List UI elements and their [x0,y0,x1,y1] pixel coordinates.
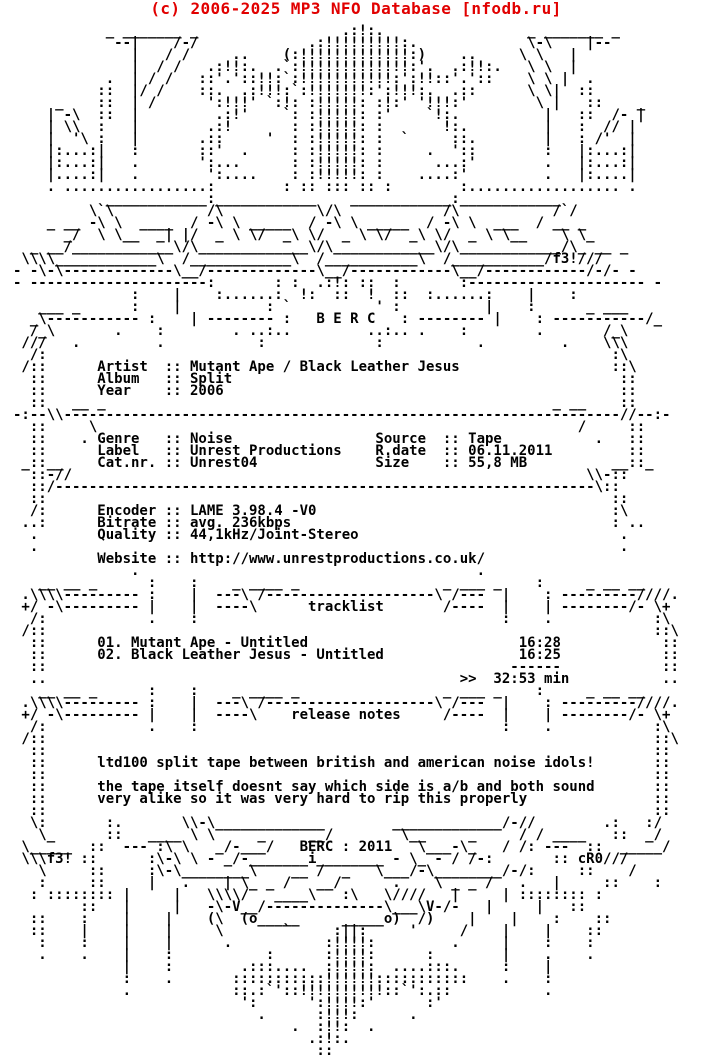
site-copyright-header: (c) 2006-2025 MP3 NFO Database [nfodb.ru… [0,1,712,16]
nfo-ascii-art: _ _______ _ .:!:. _ _______ _ --| /-/ .:… [13,25,679,1057]
